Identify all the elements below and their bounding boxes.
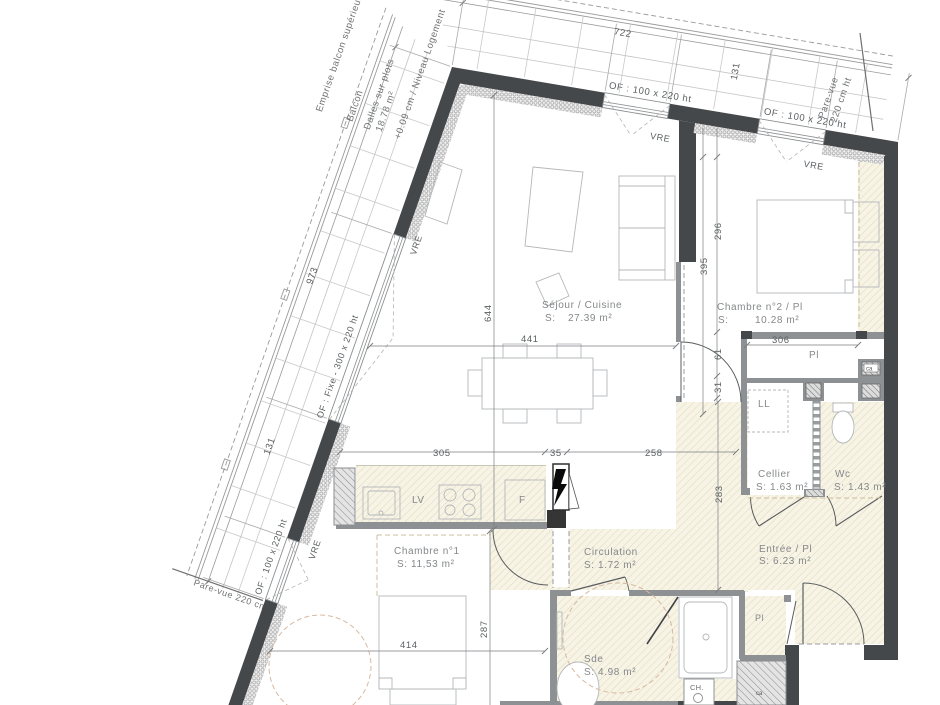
svg-text:306: 306 bbox=[772, 335, 790, 346]
svg-text:F: F bbox=[519, 495, 526, 506]
svg-text:S:: S: bbox=[545, 313, 556, 324]
svg-text:Chambre n°1: Chambre n°1 bbox=[394, 546, 460, 557]
svg-text:61: 61 bbox=[713, 348, 724, 360]
svg-text:S: 1.72 m²: S: 1.72 m² bbox=[584, 560, 636, 571]
svg-text:Entrée / Pl: Entrée / Pl bbox=[759, 544, 812, 555]
svg-text:S: 1.43 m²: S: 1.43 m² bbox=[834, 482, 886, 493]
svg-text:441: 441 bbox=[521, 334, 539, 345]
svg-text:Chambre n°2 / Pl: Chambre n°2 / Pl bbox=[717, 302, 803, 313]
svg-text:296: 296 bbox=[713, 222, 724, 240]
svg-text:287: 287 bbox=[479, 620, 490, 638]
svg-text:ca: ca bbox=[756, 691, 763, 697]
svg-text:ca: ca bbox=[866, 367, 873, 373]
svg-text:414: 414 bbox=[400, 640, 418, 651]
svg-text:S: 6.23 m²: S: 6.23 m² bbox=[759, 556, 811, 567]
svg-text:LL: LL bbox=[758, 399, 770, 410]
svg-text:Pl: Pl bbox=[809, 350, 819, 361]
svg-text:S: 4.98 m²: S: 4.98 m² bbox=[584, 667, 636, 678]
svg-text:258: 258 bbox=[645, 448, 663, 459]
svg-text:Sde: Sde bbox=[584, 654, 604, 665]
svg-text:10.28 m²: 10.28 m² bbox=[755, 315, 799, 326]
svg-text:CH.: CH. bbox=[690, 683, 704, 692]
svg-text:644: 644 bbox=[483, 304, 494, 322]
svg-text:35: 35 bbox=[550, 448, 562, 459]
svg-text:Séjour / Cuisine: Séjour / Cuisine bbox=[542, 300, 622, 311]
svg-text:Cellier: Cellier bbox=[758, 469, 791, 480]
svg-text:283: 283 bbox=[714, 485, 725, 503]
svg-text:305: 305 bbox=[433, 448, 451, 459]
svg-text:S:: S: bbox=[718, 315, 729, 326]
svg-text:Circulation: Circulation bbox=[584, 547, 638, 558]
svg-text:395: 395 bbox=[699, 257, 710, 275]
svg-text:Pl: Pl bbox=[755, 613, 764, 623]
svg-text:27.39 m²: 27.39 m² bbox=[568, 313, 612, 324]
svg-text:S: 11,53 m²: S: 11,53 m² bbox=[397, 559, 455, 570]
svg-text:Wc: Wc bbox=[835, 469, 851, 480]
svg-text:31: 31 bbox=[713, 381, 724, 393]
svg-text:LV: LV bbox=[412, 495, 425, 506]
svg-text:S: 1.63 m²: S: 1.63 m² bbox=[756, 482, 808, 493]
